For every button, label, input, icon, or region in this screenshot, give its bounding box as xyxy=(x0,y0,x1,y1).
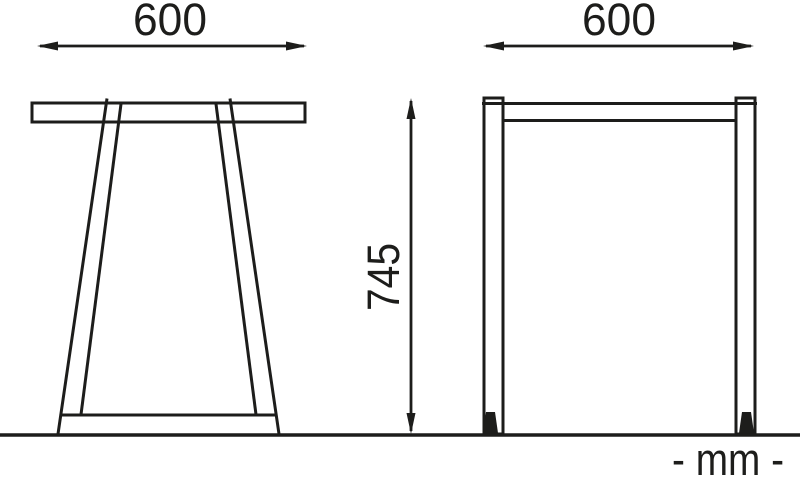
front-tabletop xyxy=(32,103,305,122)
front-width-dimension: 600 xyxy=(37,0,307,51)
front-right-leg-inner-line xyxy=(216,104,256,415)
arrowhead-down-icon xyxy=(407,413,416,434)
arrowhead-left-icon xyxy=(37,42,58,51)
side-height-dimension: 745 xyxy=(358,98,416,434)
units-label: - mm - xyxy=(672,434,784,479)
front-leg-frame xyxy=(58,99,279,435)
arrowhead-right-icon xyxy=(286,42,307,51)
arrowhead-up-icon xyxy=(407,98,416,119)
side-height-label: 745 xyxy=(358,243,409,311)
technical-drawing-page: 600 600 xyxy=(0,0,800,479)
arrowhead-right-icon xyxy=(733,42,754,51)
side-width-dimension: 600 xyxy=(483,0,754,51)
front-width-label: 600 xyxy=(133,0,207,45)
side-width-label: 600 xyxy=(582,0,656,45)
side-right-foot-glide xyxy=(739,412,754,433)
table-dimension-drawing: 600 600 xyxy=(0,0,800,479)
front-left-leg-inner-line xyxy=(81,104,121,415)
side-left-leg xyxy=(484,98,503,434)
front-view: 600 xyxy=(32,0,307,434)
arrowhead-left-icon xyxy=(483,42,504,51)
side-view: 600 745 xyxy=(358,0,757,434)
side-right-leg xyxy=(736,98,755,434)
